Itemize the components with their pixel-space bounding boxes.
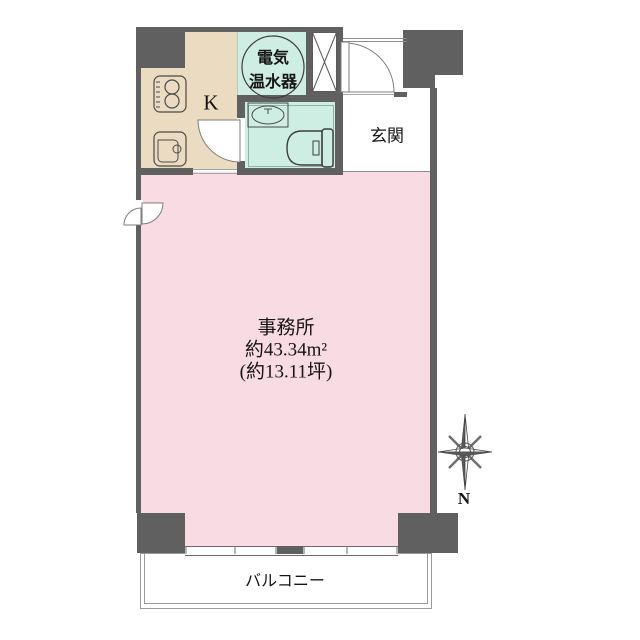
stove-icon (154, 76, 186, 112)
sink-icon (154, 132, 186, 166)
toilet-icon (287, 129, 333, 167)
office-area-tsubo-label: (約13.11坪) (240, 357, 333, 384)
plan-vector-overlay (0, 0, 640, 640)
washbasin-icon (248, 103, 288, 127)
pipe-shaft-x-icon (313, 33, 337, 92)
north-label: N (458, 489, 470, 509)
balcony-label: バルコニー (245, 567, 325, 591)
water-heater-label-line1: 電気 (257, 44, 289, 68)
chute-door-swing-icon (124, 203, 163, 225)
water-heater-label-line2: 温水器 (249, 68, 297, 92)
floor-plan: K 電気 温水器 玄関 事務所 約43.34m² (約13.11坪) バルコニー… (0, 0, 640, 640)
compass-rose-icon (438, 414, 492, 490)
bathroom-door-swing-icon (198, 120, 240, 162)
kitchen-label: K (203, 91, 218, 116)
window-mullion-ticks (186, 546, 397, 554)
entrance-label: 玄関 (370, 122, 404, 147)
entrance-door-swing-icon (341, 42, 394, 92)
